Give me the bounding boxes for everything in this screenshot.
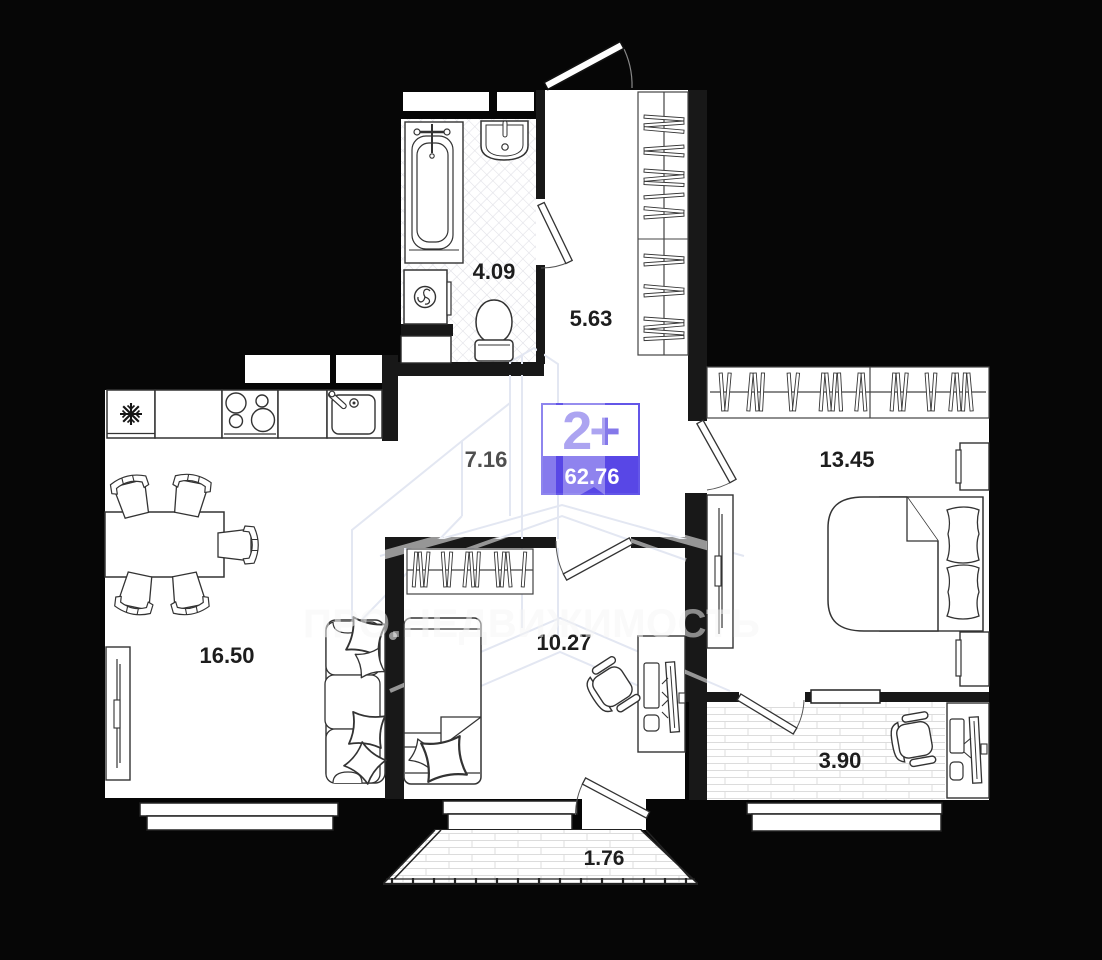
svg-text:13.45: 13.45	[819, 447, 874, 472]
svg-text:4.09: 4.09	[473, 259, 516, 284]
svg-text:3.90: 3.90	[819, 748, 862, 773]
svg-text:7.16: 7.16	[465, 447, 508, 472]
svg-text:5.63: 5.63	[570, 306, 613, 331]
svg-text:ПРО.НЕДВИЖИМОСТЬ: ПРО.НЕДВИЖИМОСТЬ	[303, 602, 760, 646]
svg-text:1.76: 1.76	[584, 847, 625, 870]
svg-text:16.50: 16.50	[199, 643, 254, 668]
